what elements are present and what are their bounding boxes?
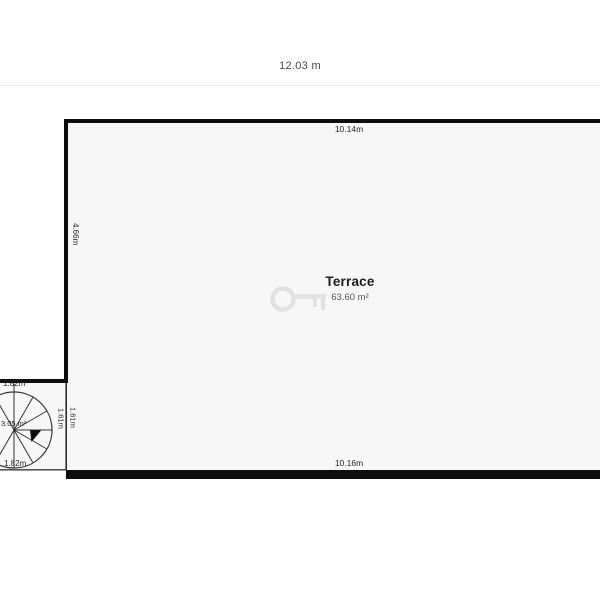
stair-area-label: 3.05 m²	[1, 420, 26, 428]
terrace-west-wall	[64, 119, 68, 383]
room-name-label: Terrace	[290, 274, 410, 289]
floorplan-page: { "plan": { "overall_width_label": "12.0…	[0, 0, 600, 600]
terrace-top-dimension-label: 10.14m	[299, 125, 399, 134]
terrace-north-wall	[64, 119, 600, 123]
terrace-left-dimension-label: 4.66m	[71, 223, 79, 269]
terrace-bottom-dimension-label: 10.16m	[299, 459, 399, 468]
room-area-label: 63.60 m²	[290, 292, 410, 303]
stair-outer-height-dimension-label: 1.61m	[69, 407, 77, 441]
terrace-south-wall	[66, 470, 600, 479]
stair-inner-height-dimension-label: 1.61m	[57, 408, 65, 442]
overall-width-dimension-label: 12.03 m	[240, 60, 360, 72]
stair-bottom-dimension-label: 1.82m	[4, 460, 26, 468]
stair-top-dimension-label: 1.82m	[3, 380, 25, 388]
header-divider-line	[0, 85, 600, 86]
